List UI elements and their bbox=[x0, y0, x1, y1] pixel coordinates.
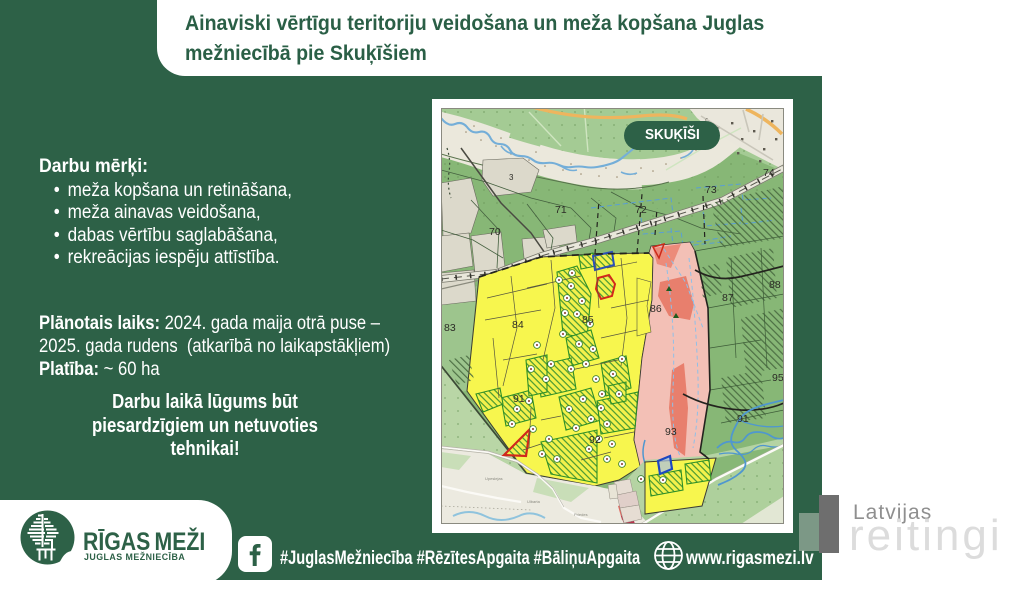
svg-text:85: 85 bbox=[582, 314, 594, 326]
svg-text:92: 92 bbox=[589, 434, 601, 446]
svg-text:83: 83 bbox=[444, 322, 456, 334]
svg-text:Upeslejas: Upeslejas bbox=[485, 476, 503, 481]
svg-text:88: 88 bbox=[769, 279, 781, 291]
svg-text:95: 95 bbox=[772, 372, 784, 384]
svg-text:71: 71 bbox=[555, 204, 567, 216]
svg-text:73: 73 bbox=[705, 184, 717, 196]
svg-text:87: 87 bbox=[722, 292, 734, 304]
svg-text:Priedes: Priedes bbox=[574, 512, 588, 517]
svg-text:91: 91 bbox=[737, 413, 749, 425]
svg-text:86: 86 bbox=[650, 303, 662, 315]
svg-text:3: 3 bbox=[509, 173, 514, 182]
svg-text:91: 91 bbox=[513, 393, 525, 405]
svg-text:Ulbarta: Ulbarta bbox=[527, 499, 541, 504]
svg-text:84: 84 bbox=[512, 319, 524, 331]
svg-text:72: 72 bbox=[635, 204, 647, 216]
svg-text:74: 74 bbox=[763, 167, 775, 179]
svg-text:70: 70 bbox=[489, 226, 501, 238]
svg-text:93: 93 bbox=[665, 426, 677, 438]
